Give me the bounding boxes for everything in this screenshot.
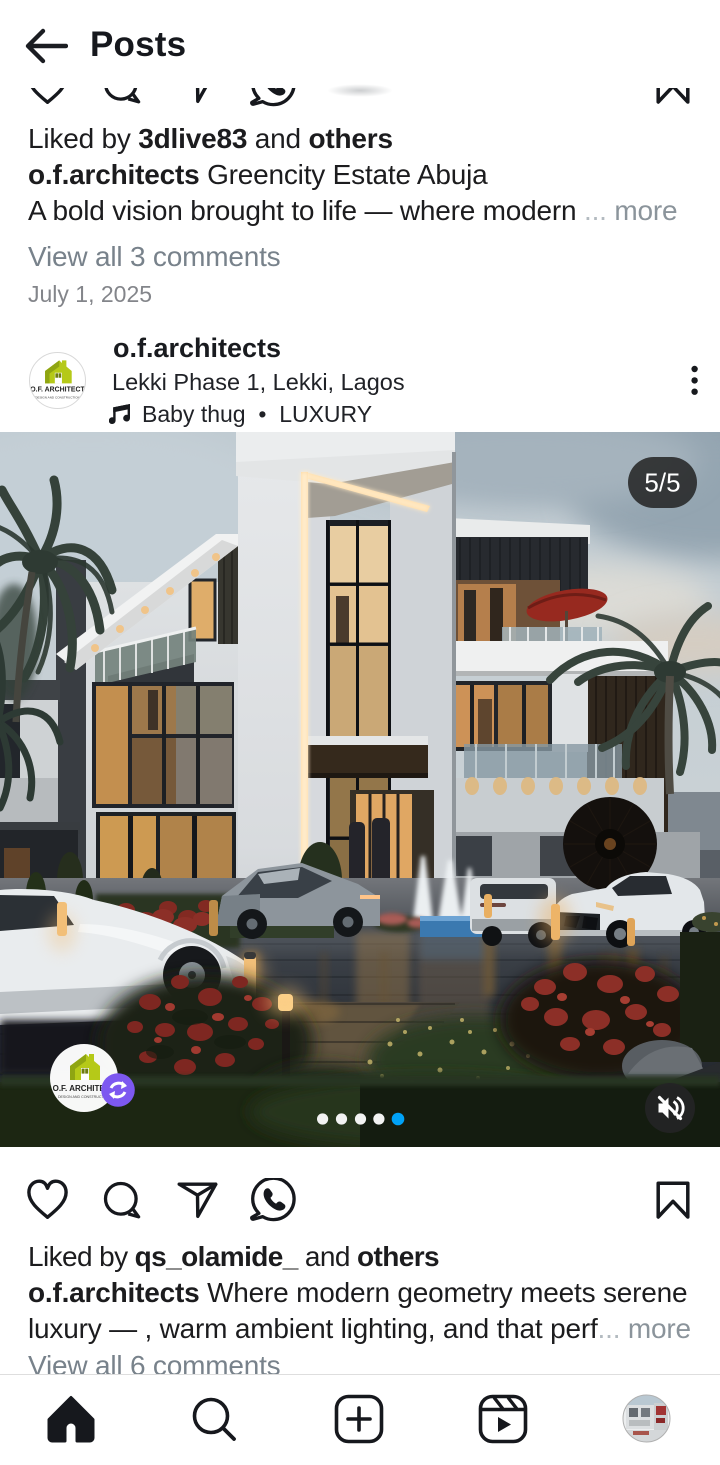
svg-text:5/5: 5/5 <box>644 468 680 498</box>
svg-text:DESIGN AND CONSTRUCTION: DESIGN AND CONSTRUCTION <box>35 395 80 399</box>
svg-text:O.F. ARCHITECT: O.F. ARCHITECT <box>30 387 85 394</box>
